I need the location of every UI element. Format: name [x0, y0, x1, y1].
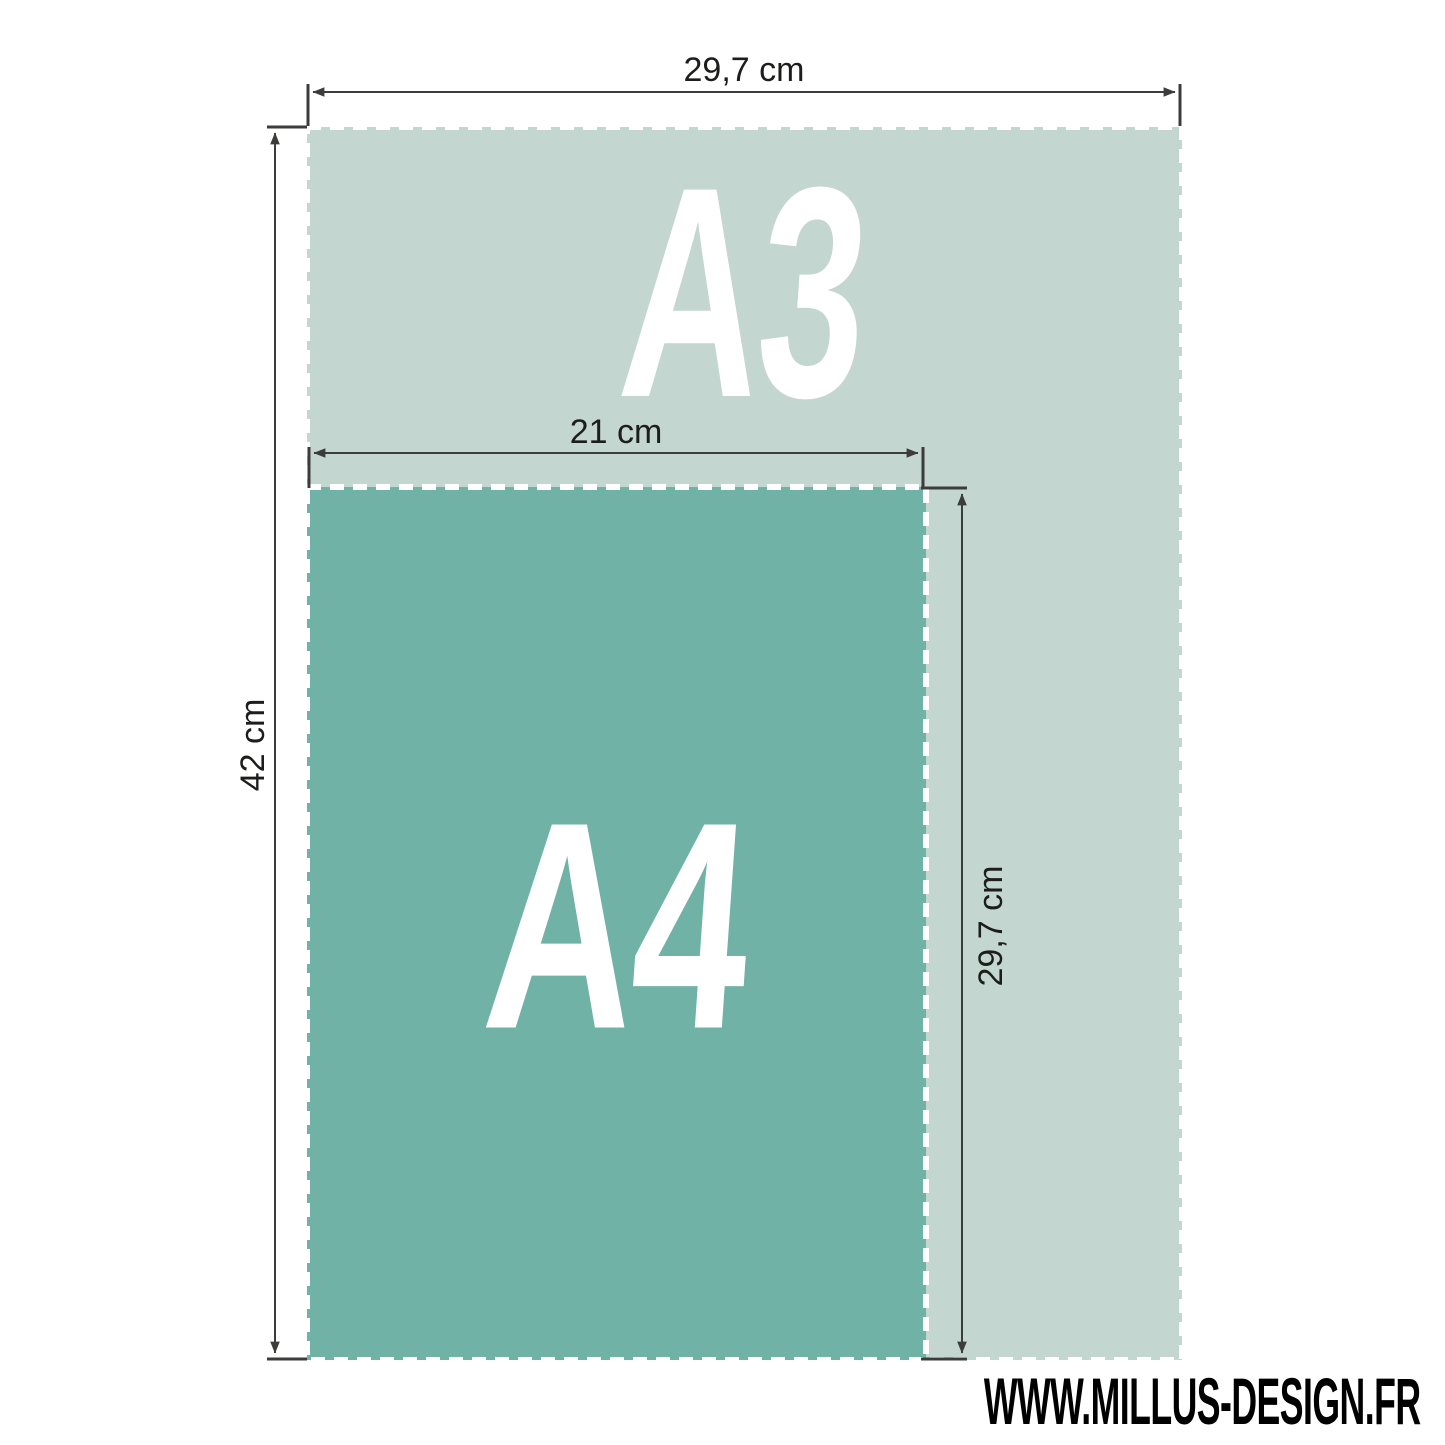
- a3-width-label: 29,7 cm: [684, 53, 805, 87]
- a4-height-label: 29,7 cm: [974, 866, 1008, 987]
- a3-height-label: 42 cm: [236, 699, 270, 792]
- a3-width-dimension: [308, 84, 1180, 126]
- paper-size-comparison-diagram: 29,7 cm 42 cm 21 cm 29,7 cm A3 A4 WWW.MI…: [0, 0, 1445, 1445]
- website-url: WWW.MILLUS-DESIGN.FR: [984, 1368, 1421, 1434]
- a3-label: A3: [613, 142, 874, 442]
- a4-label: A4: [477, 779, 756, 1074]
- a3-height-dimension: [267, 127, 307, 1359]
